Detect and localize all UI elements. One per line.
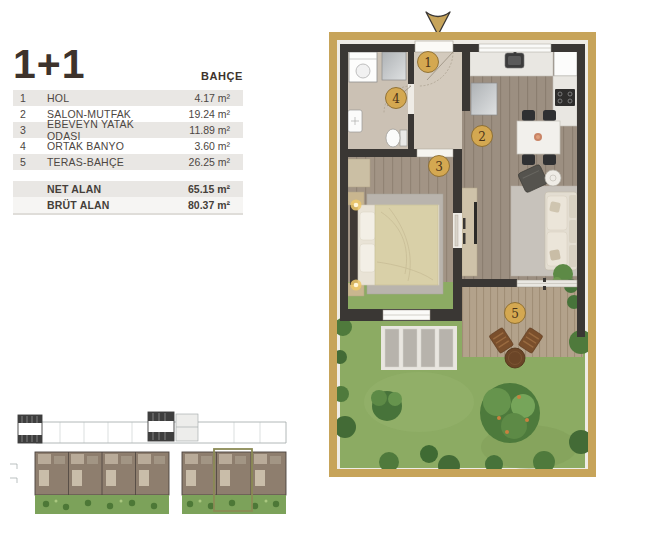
room-number: 1 — [13, 92, 47, 104]
tv-unit — [462, 188, 477, 276]
room-area: 19.24 m² — [160, 108, 243, 120]
stepping-stones — [381, 326, 457, 370]
bedside-lamp — [351, 280, 362, 291]
room-number: 2 — [13, 108, 47, 120]
net-area-row: NET ALAN 65.15 m² — [13, 181, 243, 197]
net-area-value: 65.15 m² — [150, 183, 243, 195]
room-area: 26.25 m² — [160, 156, 243, 168]
north-arrow-icon — [426, 12, 450, 35]
unit-info-panel: 1+1 BAHÇE 1 HOL 4.17 m² 2 SALON-MUTFAK 1… — [13, 42, 243, 215]
net-area-label: NET ALAN — [13, 183, 150, 195]
svg-text:1: 1 — [424, 56, 432, 70]
room-badge-1: 1 — [418, 52, 439, 73]
gross-area-row: BRÜT ALAN 80.37 m² — [13, 197, 243, 215]
table-row: 3 EBEVEYN YATAK ODASI 11.89 m² — [13, 122, 243, 138]
kitchen-appliance — [471, 83, 497, 115]
garden-tree — [480, 383, 540, 443]
unit-variant-label: BAHÇE — [201, 70, 243, 82]
room-number: 5 — [13, 156, 47, 168]
bedroom-window — [383, 310, 430, 320]
room-area: 11.89 m² — [160, 124, 243, 136]
area-summary: NET ALAN 65.15 m² BRÜT ALAN 80.37 m² — [13, 181, 243, 215]
site-margin-marks — [10, 464, 17, 483]
bedside-lamp — [351, 200, 362, 211]
room-badge-3: 3 — [429, 156, 450, 177]
table-row: 5 TERAS-BAHÇE 26.25 m² — [13, 154, 243, 170]
site-plan-svg — [8, 408, 293, 536]
tv — [474, 202, 477, 244]
room-area: 3.60 m² — [160, 140, 243, 152]
svg-text:4: 4 — [392, 92, 400, 106]
stair-core — [148, 412, 198, 441]
room-number: 4 — [13, 140, 47, 152]
floor-plan: 1 2 3 4 5 — [329, 2, 596, 477]
title-row: 1+1 BAHÇE — [13, 42, 243, 88]
table-row: 4 ORTAK BANYO 3.60 m² — [13, 138, 243, 154]
room-name: TERAS-BAHÇE — [47, 156, 160, 168]
room-name: EBEVEYN YATAK ODASI — [47, 118, 160, 142]
bathroom-sink — [348, 110, 362, 132]
floor-plan-svg: 1 2 3 4 5 — [329, 2, 596, 477]
stair-core — [18, 415, 42, 443]
deck-table — [505, 348, 525, 368]
room-badge-2: 2 — [472, 126, 493, 147]
unit-block-right — [182, 452, 286, 495]
wardrobe — [348, 159, 370, 187]
unit-block-left — [35, 452, 169, 495]
room-name: ORTAK BANYO — [47, 140, 160, 152]
gross-area-label: BRÜT ALAN — [13, 199, 150, 211]
svg-text:3: 3 — [435, 160, 443, 174]
gross-area-value: 80.37 m² — [150, 199, 243, 211]
room-name: HOL — [47, 92, 160, 104]
room-table: 1 HOL 4.17 m² 2 SALON-MUTFAK 19.24 m² 3 … — [13, 90, 243, 170]
room-area: 4.17 m² — [160, 92, 243, 104]
room-badge-4: 4 — [386, 88, 407, 109]
svg-text:2: 2 — [478, 130, 486, 144]
shower-unit — [382, 52, 406, 80]
bedroom-door-sill — [417, 149, 453, 157]
site-key-plan — [8, 408, 293, 536]
sofa — [545, 192, 577, 270]
kitchen-sink — [505, 50, 524, 68]
table-row: 1 HOL 4.17 m² — [13, 90, 243, 106]
fridge — [554, 49, 577, 76]
toilet — [386, 129, 407, 147]
svg-text:5: 5 — [511, 307, 519, 321]
washing-machine — [349, 52, 377, 82]
floorplan-page: 1+1 BAHÇE 1 HOL 4.17 m² 2 SALON-MUTFAK 1… — [0, 0, 660, 539]
room-badge-5: 5 — [505, 303, 526, 324]
stove — [555, 89, 575, 106]
bed — [350, 205, 439, 285]
plan-interior: 1 2 3 4 5 — [333, 41, 593, 477]
kitchen-window — [479, 44, 551, 52]
room-number: 3 — [13, 124, 47, 136]
side-table — [545, 170, 561, 186]
